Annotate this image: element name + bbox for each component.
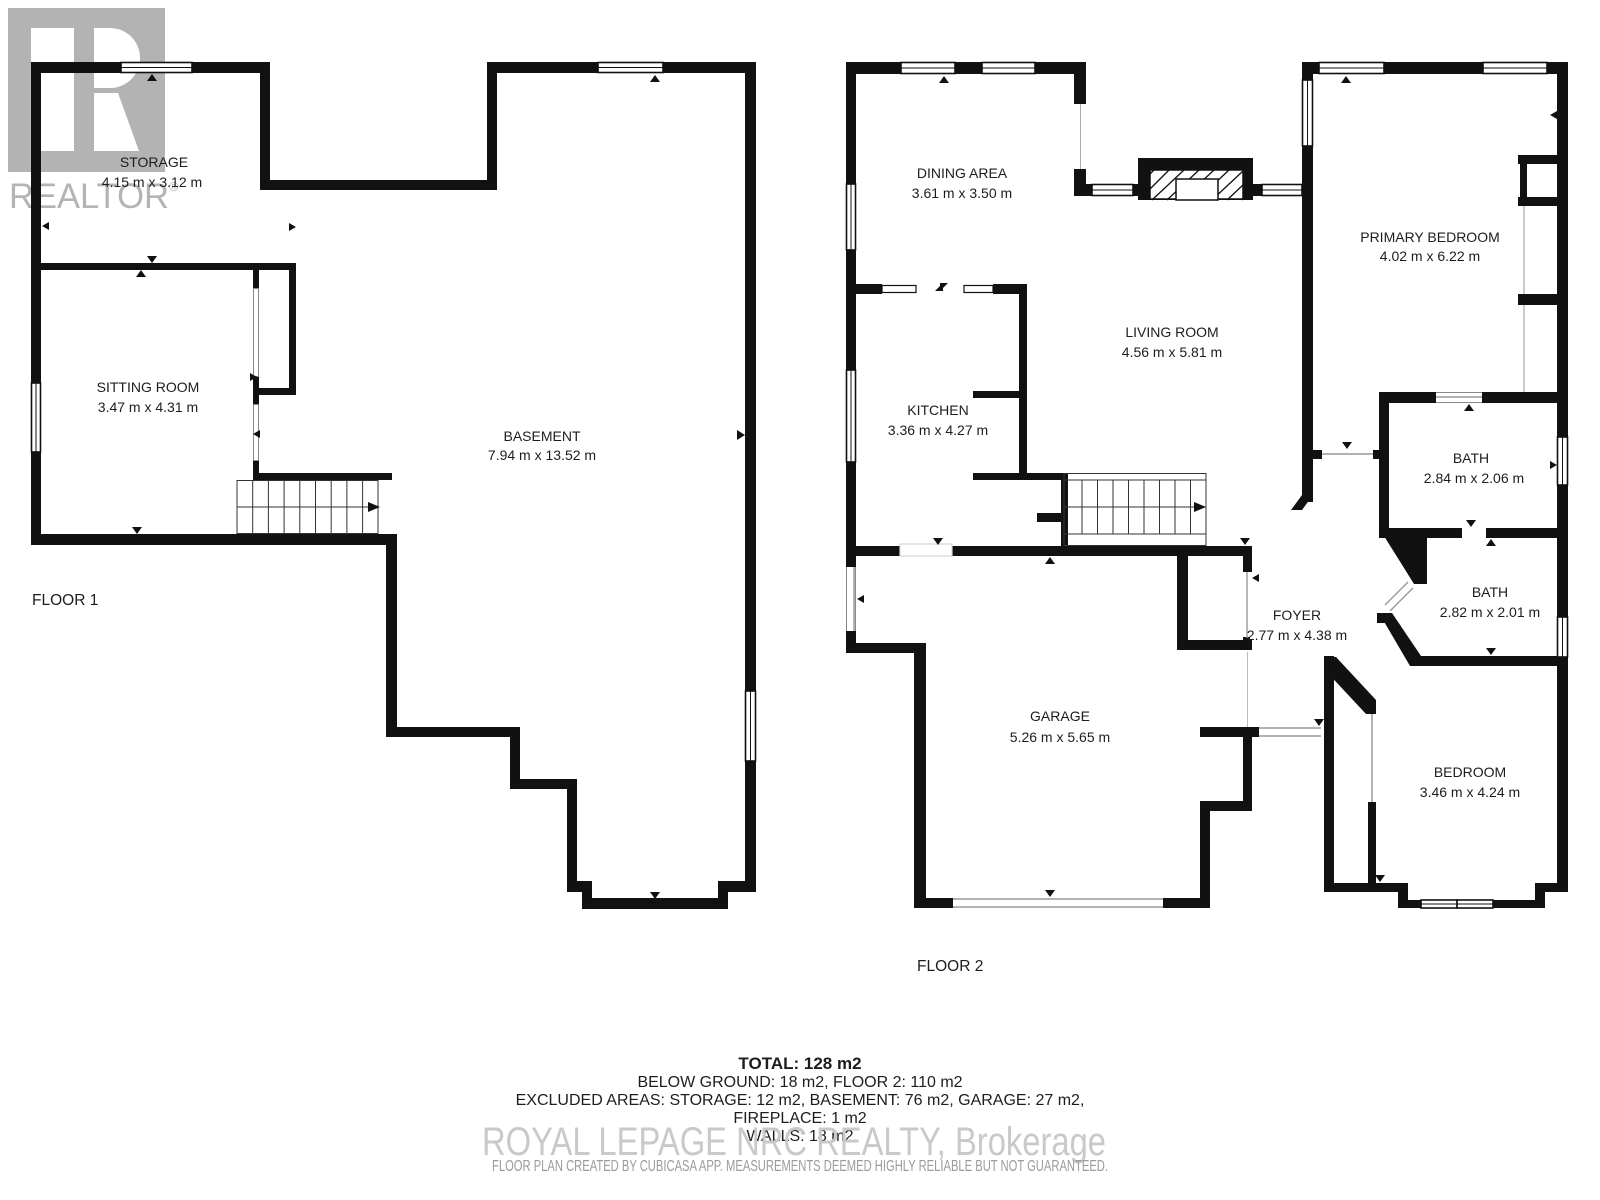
svg-text:2.84 m x 2.06 m: 2.84 m x 2.06 m [1424,470,1524,486]
svg-text:BEDROOM: BEDROOM [1434,764,1506,780]
svg-text:2.77 m x 4.38 m: 2.77 m x 4.38 m [1247,627,1347,643]
svg-text:4.02 m x 6.22 m: 4.02 m x 6.22 m [1380,248,1480,264]
svg-text:4.15 m x 3.12 m: 4.15 m x 3.12 m [102,174,202,190]
svg-text:BATH: BATH [1453,450,1489,466]
svg-text:2.82 m x 2.01 m: 2.82 m x 2.01 m [1440,604,1540,620]
svg-text:3.47 m x 4.31 m: 3.47 m x 4.31 m [98,399,198,415]
svg-text:STORAGE: STORAGE [120,154,188,170]
svg-text:FOYER: FOYER [1273,607,1321,623]
svg-text:PRIMARY BEDROOM: PRIMARY BEDROOM [1360,229,1500,245]
svg-text:GARAGE: GARAGE [1030,708,1090,724]
svg-text:3.46 m x 4.24 m: 3.46 m x 4.24 m [1420,784,1520,800]
svg-text:DINING AREA: DINING AREA [917,165,1008,181]
svg-text:SITTING ROOM: SITTING ROOM [97,379,200,395]
svg-text:4.56 m x 5.81 m: 4.56 m x 5.81 m [1122,344,1222,360]
svg-text:FLOOR 1: FLOOR 1 [32,592,98,609]
svg-text:BASEMENT: BASEMENT [503,428,580,444]
svg-text:TOTAL: 128 m2: TOTAL: 128 m2 [738,1054,861,1073]
svg-text:LIVING ROOM: LIVING ROOM [1125,324,1218,340]
svg-text:EXCLUDED AREAS: STORAGE: 12 m2: EXCLUDED AREAS: STORAGE: 12 m2, BASEMENT… [516,1092,1085,1109]
svg-text:7.94 m x 13.52 m: 7.94 m x 13.52 m [488,447,596,463]
svg-text:BATH: BATH [1472,584,1508,600]
svg-text:BELOW GROUND: 18 m2, FLOOR 2:: BELOW GROUND: 18 m2, FLOOR 2: 110 m2 [637,1074,962,1091]
svg-text:5.26 m x 5.65 m: 5.26 m x 5.65 m [1010,729,1110,745]
svg-text:3.61 m x 3.50 m: 3.61 m x 3.50 m [912,185,1012,201]
svg-text:FLOOR 2: FLOOR 2 [917,958,983,975]
svg-text:3.36 m x 4.27 m: 3.36 m x 4.27 m [888,422,988,438]
svg-text:FLOOR PLAN CREATED BY CUBICASA: FLOOR PLAN CREATED BY CUBICASA APP. MEAS… [492,1158,1108,1175]
svg-text:KITCHEN: KITCHEN [907,402,968,418]
